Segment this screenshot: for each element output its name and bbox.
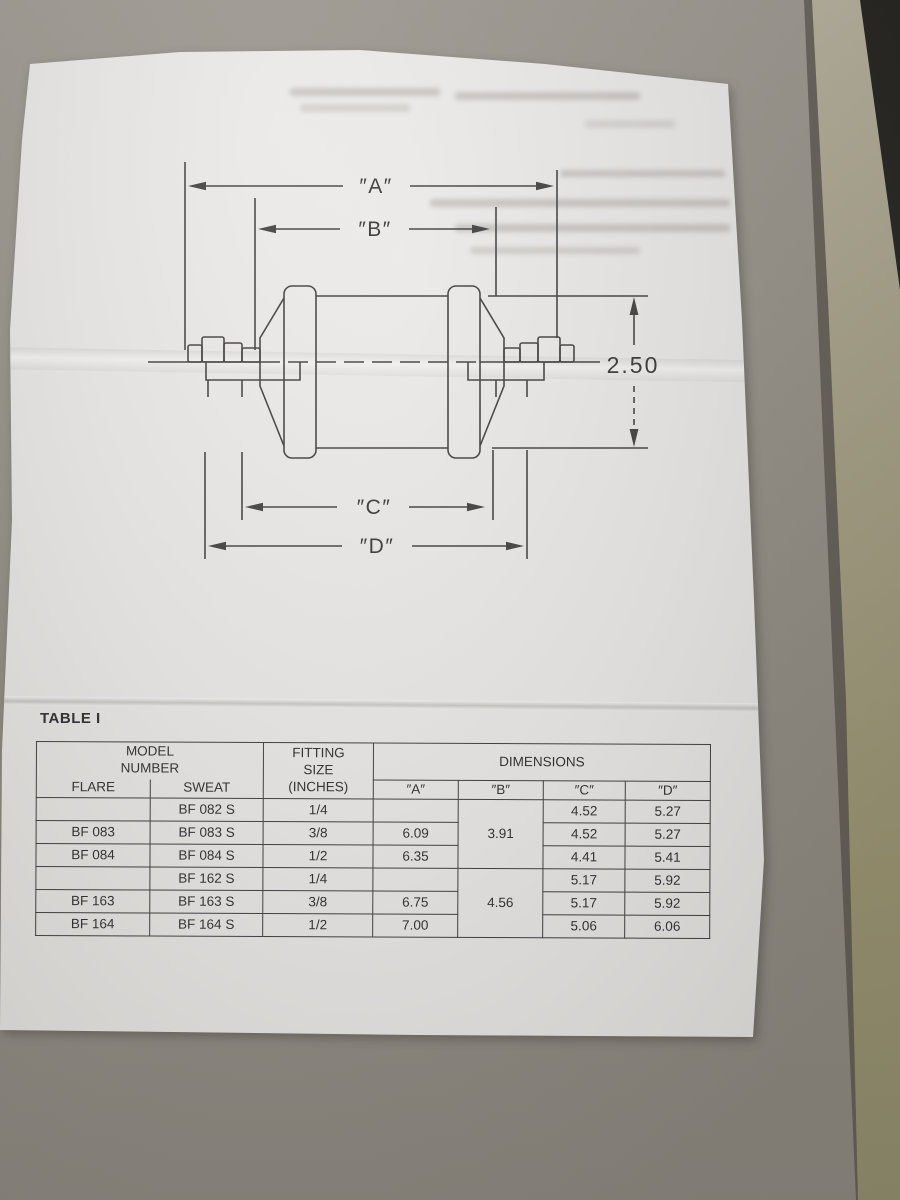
header-dimensions: DIMENSIONS [373,743,710,781]
dimension-b: ″B″ [255,198,496,350]
bleed-through-text [430,199,730,207]
paper-sheet: ″A″ ″B″ [0,0,900,1200]
dim-d-label: ″D″ [360,535,395,558]
bleed-through-text [290,88,440,96]
table-title: TABLE I [40,710,101,727]
table-cell: BF 164 S [150,913,263,936]
table-cell: 6.35 [373,845,458,868]
table-row: BF 162 S1/44.565.175.92 [36,867,710,893]
dimension-a: ″A″ [185,162,557,350]
photo-of-document: ″A″ ″B″ [0,0,900,1200]
table-row: BF 082 S1/43.914.525.27 [36,798,710,824]
paper-fold-crease [0,347,790,383]
header-sweat: SWEAT [150,779,263,798]
table-cell: 1/4 [263,867,373,890]
header-model-number: MODEL NUMBER [36,742,263,780]
table-row: BF 083BF 083 S3/86.094.525.27 [36,821,710,847]
table-cell: 1/2 [263,844,373,867]
table-cell: 6.06 [625,915,710,938]
header-dim-d: ″D″ [625,781,710,800]
table-header: MODEL NUMBER FITTING SIZE (INCHES) DIMEN… [36,742,710,801]
table-cell: 4.41 [543,846,625,869]
bleed-through-text [455,224,730,232]
paper-fold-crease [0,696,790,713]
paper-sheet-wrap: ″A″ ″B″ [0,0,900,1200]
table-cell: 5.27 [625,823,710,846]
table-cell [36,798,150,821]
table-cell [36,867,150,890]
dim-b-label: ″B″ [358,218,391,241]
bleed-through-text [455,92,640,100]
table-cell: 5.06 [543,915,625,938]
header-dim-b: ″B″ [458,780,543,799]
bleed-through-text [585,120,675,128]
filter-drier-drawing: ″A″ ″B″ [0,0,900,640]
table-cell [373,799,458,822]
table-cell [373,868,458,891]
bleed-through-text [470,247,640,254]
table-cell: BF 163 S [150,890,263,913]
table-cell: 5.27 [625,800,710,823]
dim-a-label: ″A″ [359,175,392,198]
header-flare: FLARE [36,779,150,798]
table-cell: 5.41 [625,846,710,869]
table-row: BF 084BF 084 S1/26.354.415.41 [36,844,710,870]
dimension-d: ″D″ [205,450,527,559]
table-cell: 1/2 [263,913,373,936]
table-cell: 3/8 [263,890,373,913]
table-cell: BF 083 S [150,821,263,844]
table-cell: BF 162 S [150,867,263,890]
dimension-c: ″C″ [242,450,493,520]
table-cell: 7.00 [373,914,458,937]
table-cell: 4.52 [543,823,625,846]
bleed-through-text [560,170,725,177]
table-cell: 5.17 [543,892,625,915]
dimensions-table: MODEL NUMBER FITTING SIZE (INCHES) DIMEN… [35,741,711,939]
table-cell: BF 082 S [150,798,263,821]
table-cell: BF 163 [36,890,150,913]
table-cell: BF 084 [36,844,150,867]
bleed-through-text [300,104,410,112]
header-fitting-size: FITTING SIZE (INCHES) [263,742,373,798]
table-body: BF 082 S1/43.914.525.27BF 083BF 083 S3/8… [36,798,711,939]
table-cell: 4.52 [543,800,625,823]
table-cell: BF 164 [36,913,150,936]
table-cell: BF 084 S [150,844,263,867]
table-cell: 4.56 [458,868,543,937]
table-row: BF 163BF 163 S3/86.755.175.92 [36,890,710,916]
table-cell: 3/8 [263,821,373,844]
table-cell: 6.09 [373,822,458,845]
table-cell: 5.17 [543,869,625,892]
table-cell: 6.75 [373,891,458,914]
table-cell: 5.92 [625,869,710,892]
header-dim-c: ″C″ [543,781,625,800]
table-cell: 1/4 [263,798,373,821]
table-cell: BF 083 [36,821,150,844]
dim-c-label: ″C″ [357,496,392,519]
table-row: BF 164BF 164 S1/27.005.066.06 [36,913,710,939]
table-cell: 5.92 [625,892,710,915]
header-dim-a: ″A″ [373,780,458,799]
table-cell: 3.91 [458,799,543,868]
